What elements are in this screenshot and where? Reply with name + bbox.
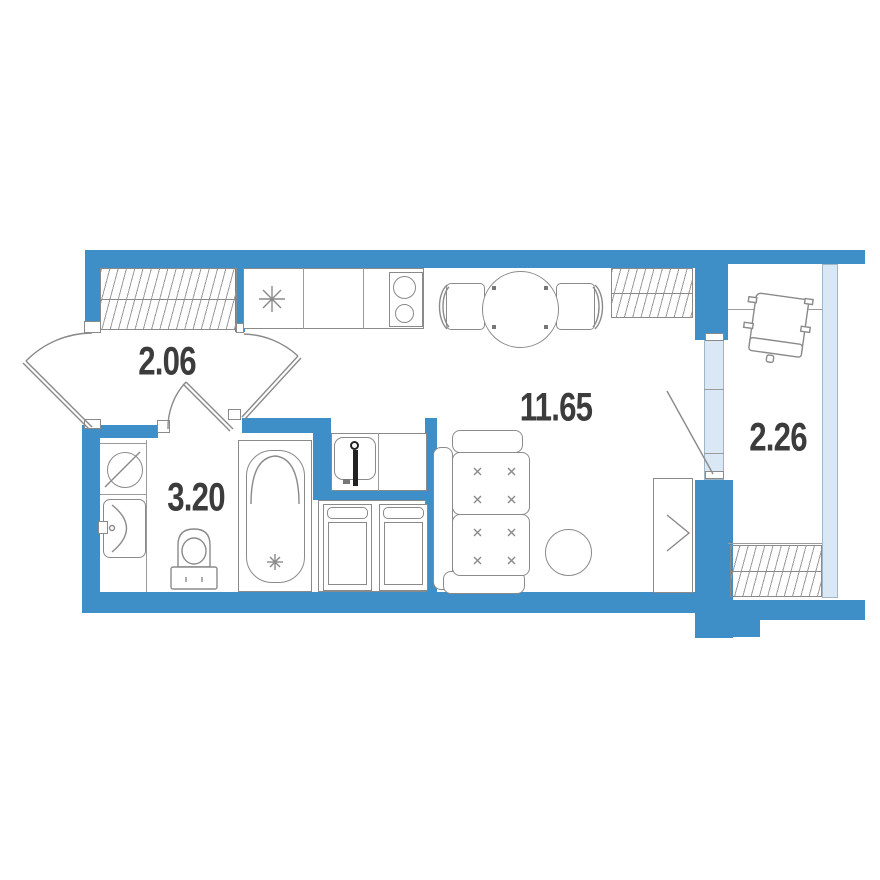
cabinet-panel: [328, 522, 367, 585]
toilet-icon: [171, 529, 217, 589]
wall-left-lower: [82, 425, 100, 612]
bath-partition: [100, 443, 147, 444]
wall-left-upper: [85, 250, 100, 332]
floor-plan: 2.06 3.20 11.65 2.26: [0, 0, 880, 880]
cabinet-handle: [383, 507, 424, 519]
counter-divider: [363, 268, 364, 329]
wardrobe-hatch-icon: [730, 545, 822, 597]
living-door-icon: [242, 334, 301, 419]
wall-bath-top-left: [100, 425, 158, 438]
sofa-icon: [452, 452, 530, 515]
door-jamb: [228, 409, 241, 420]
cabinet-panel: [384, 522, 423, 585]
lineart-overlay: [0, 0, 880, 880]
balcony-door-mullion: [704, 453, 724, 454]
wall-right-upper: [695, 250, 728, 340]
room-label-balcony: 2.26: [749, 416, 807, 461]
dining-chair-icon: [556, 283, 595, 330]
faucet-mark: [343, 479, 350, 484]
wardrobe-hatch-icon: [611, 268, 693, 318]
sofa-icon: [452, 514, 530, 576]
bath-partition: [100, 494, 147, 495]
cabinet-handle: [327, 507, 368, 519]
bathroom-door-icon: [168, 382, 233, 431]
door-jamb: [705, 333, 724, 341]
washing-machine-icon: [107, 452, 143, 488]
balcony-door-mullion: [704, 389, 724, 390]
wall-niche-left: [313, 433, 331, 493]
balcony-door-icon: [704, 340, 724, 480]
stove-burner: [395, 304, 414, 323]
wardrobe-icon: [653, 478, 693, 593]
stove-burner: [393, 276, 416, 299]
pouf-icon: [545, 529, 592, 576]
door-jamb: [84, 419, 101, 429]
room-label-living: 11.65: [520, 386, 592, 431]
balcony-glazing-icon: [822, 264, 838, 598]
entry-door-icon: [23, 333, 92, 429]
wall-bath-top-right: [242, 418, 331, 433]
door-jamb: [157, 420, 170, 433]
wall-top-balcony: [710, 250, 865, 264]
wall-bottom-main: [82, 592, 700, 613]
dining-chair-icon: [446, 283, 485, 330]
dining-table-icon: [482, 271, 559, 348]
wall-top-main: [85, 250, 710, 268]
room-label-hallway: 2.06: [138, 340, 196, 385]
door-jamb: [236, 323, 244, 333]
faucet-icon: [353, 450, 358, 486]
wall-niche-bottom: [313, 490, 425, 500]
balcony-floor-line: [728, 543, 822, 544]
door-jamb: [84, 321, 101, 333]
niche-divider: [378, 433, 379, 491]
sofa-back: [433, 447, 453, 590]
balcony-chair-icon: [739, 291, 814, 368]
bathtub-inner: [246, 450, 305, 583]
balcony-floor-line: [728, 309, 822, 310]
counter-divider: [303, 268, 304, 329]
wardrobe-hatch-icon: [100, 268, 237, 330]
door-jamb: [705, 471, 724, 479]
sofa-armrest: [452, 430, 523, 453]
basin-faucet-icon: [98, 521, 108, 534]
faucet-icon: [350, 441, 359, 450]
bath-partition: [146, 440, 147, 592]
room-label-bathroom: 3.20: [167, 476, 225, 521]
washbasin-icon: [103, 499, 146, 558]
wall-bottom-balcony: [728, 600, 865, 620]
